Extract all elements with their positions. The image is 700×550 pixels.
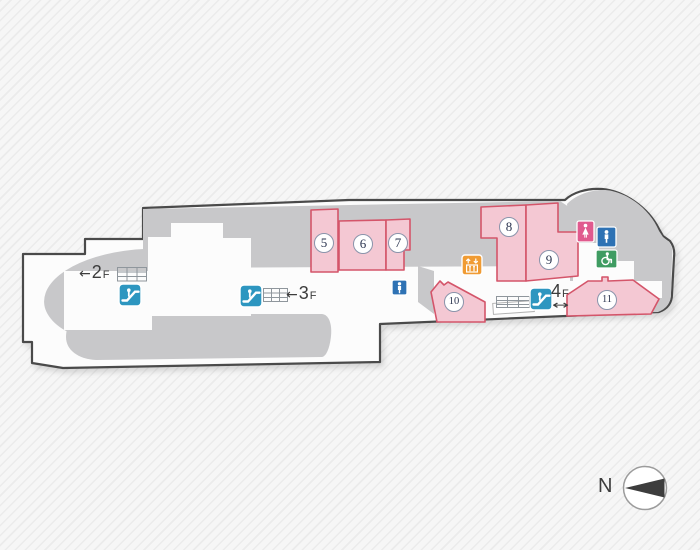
room-6-badge[interactable]: 6 [353,234,373,254]
elevator-icon [462,255,482,275]
mens-toilet-dome-icon [597,227,616,247]
left-arrow-icon: ← [286,287,298,303]
room-11-badge[interactable]: 11 [597,290,617,310]
escalator-to-4f-icon[interactable] [530,288,552,310]
floor-link-3f[interactable]: ← 3 F [286,284,316,303]
double-arrow-icon: ↔ [552,298,569,312]
floor-2f-number: 2 [92,263,102,281]
compass-north-label: N [598,475,612,498]
accessible-toilet-icon [596,250,617,268]
escalator-to-3f-icon[interactable] [240,285,262,307]
floor-plan-stage: 567891011 ← 2 F ← 3 F 4 F ↔ N [0,0,700,550]
room-9-badge[interactable]: 9 [539,250,559,270]
escalator-to-2f-icon[interactable] [119,284,141,306]
mens-toilet-icon [392,280,407,295]
room-10-badge[interactable]: 10 [444,292,464,312]
floor-2f-suffix: F [103,269,110,281]
left-arrow-icon: ← [79,266,91,282]
room-8-badge[interactable]: 8 [499,217,519,237]
floor-3f-number: 3 [299,284,309,302]
womens-toilet-icon [577,221,594,242]
floor-link-2f[interactable]: ← 2 F [79,263,109,282]
room-5-badge[interactable]: 5 [314,233,334,253]
compass-north-icon [624,467,667,510]
floor-3f-suffix: F [310,290,317,302]
floor-link-4f[interactable]: 4 F ↔ [551,282,569,312]
room-7-badge[interactable]: 7 [388,233,408,253]
